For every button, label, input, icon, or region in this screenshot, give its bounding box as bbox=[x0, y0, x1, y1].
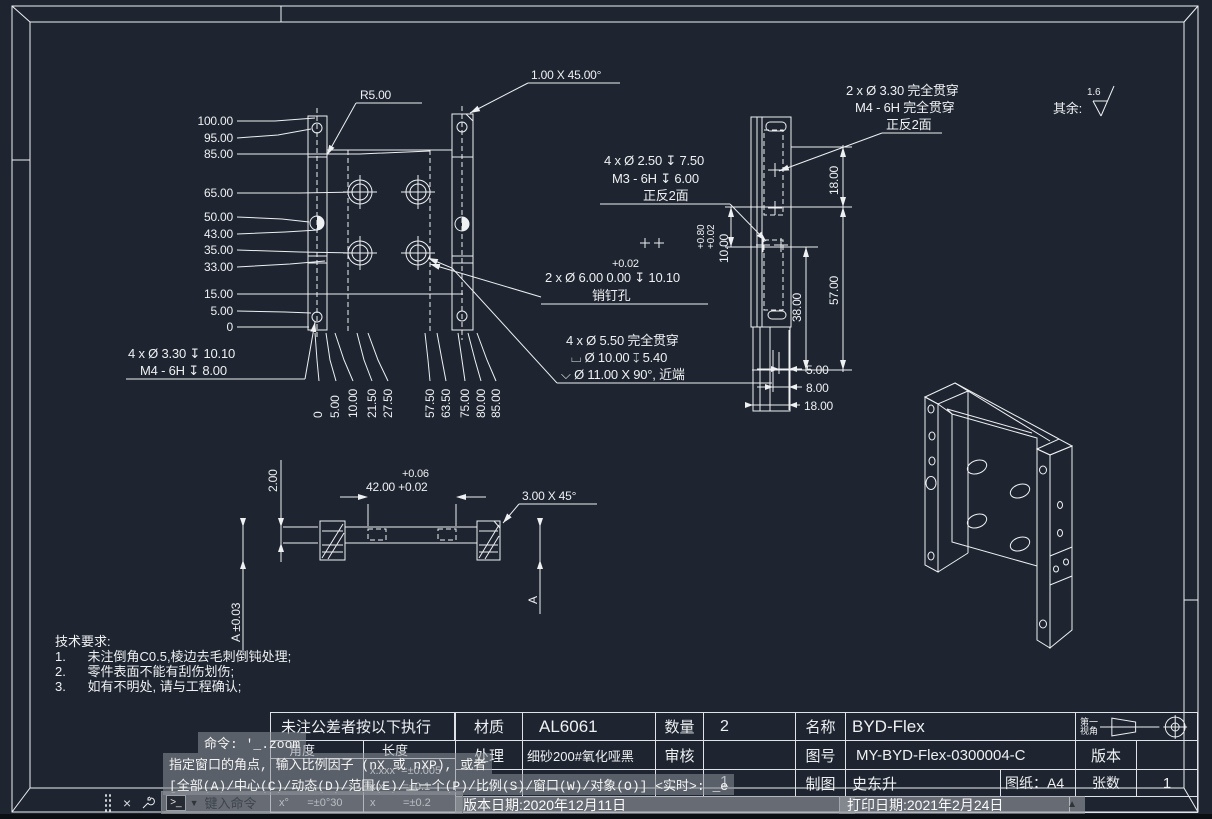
dim-label: 33.00 bbox=[204, 260, 234, 274]
dim-label: 0 bbox=[311, 411, 325, 418]
check-label: 审核 bbox=[655, 740, 704, 770]
technical-requirements: 技术要求: 1. 未注倒角C0.5,棱边去毛刺倒钝处理; 2. 零件表面不能有刮… bbox=[55, 634, 291, 694]
dim-label: +0.06 bbox=[402, 468, 429, 480]
dim-label: 2.00 bbox=[266, 469, 280, 492]
dim-label: 42.00 +0.02 bbox=[366, 480, 428, 494]
surface-finish-label: 其余: bbox=[1053, 101, 1082, 116]
empty-cell bbox=[1069, 796, 1198, 813]
callouts: R5.00 1.00 X 45.00° 2 x Ø 3.30 完全贯穿 M4 -… bbox=[126, 68, 1114, 383]
command-input[interactable]: >_ ▼ 键入命令 bbox=[161, 791, 463, 814]
sheets-label: 张数 bbox=[1075, 769, 1137, 797]
command-prompt-icon: >_ bbox=[166, 795, 185, 811]
version-date-bar: 版本日期:2020年12月11日 bbox=[455, 796, 855, 814]
dim-label: 95.00 bbox=[204, 131, 234, 145]
dim-label: 85.00 bbox=[489, 388, 503, 418]
chevron-down-icon[interactable]: ▼ bbox=[190, 798, 199, 808]
cbore-callout: ⌵ Ø 11.00 X 90°, 近端 bbox=[561, 367, 685, 382]
command-window: × >_ ▼ 键入命令 bbox=[104, 791, 463, 814]
sheet-label: 图纸：A4 bbox=[1000, 769, 1076, 797]
dim-label: 43.00 bbox=[204, 227, 234, 241]
status-strip bbox=[0, 814, 1212, 819]
tech-req-item: 3. 如有不明处, 请与工程确认; bbox=[55, 679, 291, 694]
m4-left-callout: M4 - 6H ↧ 8.00 bbox=[140, 363, 227, 378]
sheets-value: 1 bbox=[1136, 769, 1198, 797]
dim-label: 63.50 bbox=[439, 388, 453, 418]
dowel-callout-tol: +0.02 bbox=[612, 258, 639, 270]
dim-label: 18.00 bbox=[804, 399, 834, 413]
customize-wrench-icon[interactable] bbox=[141, 795, 156, 810]
name-label: 名称 bbox=[795, 712, 846, 741]
command-history-line: 命令: '_.zoom bbox=[198, 732, 306, 753]
side-view-dimensions: 18.00 57.00 38.00 +0.80 +0.02 10.00 5.00… bbox=[696, 145, 852, 413]
print-date-text: 打印日期:2021年2月24日 bbox=[847, 795, 1003, 815]
m4-top-callout: M4 - 6H 完全贯穿 bbox=[855, 100, 955, 115]
dim-label: 18.00 bbox=[827, 165, 841, 195]
dim-label: 21.50 bbox=[365, 388, 379, 418]
command-history-line: 指定窗口的角点, 输入比例因子 (nX 或 nXP), 或者 bbox=[163, 753, 492, 774]
material-label: 材质 bbox=[455, 712, 523, 741]
quantity-label: 数量 bbox=[655, 712, 704, 741]
drag-handle-icon[interactable] bbox=[104, 793, 112, 813]
dowel-callout: 2 x Ø 6.00 0.00 ↧ 10.10 bbox=[545, 270, 680, 285]
dim-label: 80.00 bbox=[474, 388, 488, 418]
section-view: +0.06 42.00 +0.02 2.00 3.00 X 45° A ±0.0… bbox=[229, 460, 597, 650]
dim-label: 65.00 bbox=[204, 186, 234, 200]
surface-finish-value: 1.6 bbox=[1087, 87, 1101, 98]
tech-req-item: 2. 零件表面不能有刮伤划伤; bbox=[55, 664, 291, 679]
chamfer-callout: 1.00 X 45.00° bbox=[531, 68, 602, 82]
part-name: BYD-Flex bbox=[845, 712, 1076, 741]
m3-callout: M3 - 6H ↧ 6.00 bbox=[612, 171, 699, 186]
dowel-callout-note: 销钉孔 bbox=[592, 288, 631, 303]
first-angle-projection-icon bbox=[1098, 713, 1197, 741]
tech-req-title: 技术要求: bbox=[55, 634, 291, 649]
datum-label: A bbox=[526, 596, 540, 604]
front-left-dimensions: 100.00 95.00 85.00 65.00 50.00 43.00 35.… bbox=[197, 114, 463, 334]
dim-label: 10.00 bbox=[717, 233, 731, 263]
drawing-canvas[interactable]: 100.00 95.00 85.00 65.00 50.00 43.00 35.… bbox=[0, 0, 1212, 819]
drawing-no-label: 图号 bbox=[795, 740, 846, 770]
dim-label: 5.00 bbox=[328, 395, 342, 418]
isometric-view bbox=[925, 383, 1072, 648]
cbore-callout: ⌴ Ø 10.00 ↧ 5.40 bbox=[571, 350, 667, 365]
front-bottom-dimensions: 0 5.00 10.00 21.50 27.50 57.50 63.50 75.… bbox=[311, 333, 503, 418]
radius-callout: R5.00 bbox=[360, 88, 392, 102]
dim-label: 38.00 bbox=[790, 292, 804, 322]
quantity-value: 2 bbox=[703, 712, 796, 741]
dim-label: 50.00 bbox=[204, 210, 234, 224]
check-value bbox=[703, 740, 796, 770]
cbore-holes bbox=[343, 175, 435, 270]
finish-value: 细砂200#氧化哑黑 bbox=[522, 740, 656, 770]
dim-label: 85.00 bbox=[204, 147, 234, 161]
m4-top-callout: 2 x Ø 3.30 完全贯穿 bbox=[846, 83, 959, 98]
tech-req-item: 1. 未注倒角C0.5,棱边去毛刺倒钝处理; bbox=[55, 649, 291, 664]
dim-label: 8.00 bbox=[806, 381, 829, 395]
cbore-callout: 4 x Ø 5.50 完全贯穿 bbox=[566, 333, 679, 348]
dim-label: 57.00 bbox=[827, 275, 841, 305]
version-value bbox=[1136, 740, 1198, 770]
close-icon[interactable]: × bbox=[123, 795, 131, 811]
command-input-placeholder: 键入命令 bbox=[205, 793, 257, 812]
scroll-up-icon[interactable]: ▲ bbox=[1067, 799, 1077, 810]
drafter-value: 史东升 bbox=[845, 769, 1001, 797]
m4-left-callout: 4 x Ø 3.30 ↧ 10.10 bbox=[128, 346, 235, 361]
version-date-text: 版本日期:2020年12月11日 bbox=[463, 795, 626, 815]
dim-label: 5.00 bbox=[806, 363, 829, 377]
dim-label: 75.00 bbox=[458, 388, 472, 418]
dim-label: 10.00 bbox=[346, 388, 360, 418]
m3-callout: 正反2面 bbox=[643, 188, 689, 203]
projection-label: 视角 bbox=[1080, 727, 1098, 736]
print-date-bar: 打印日期:2021年2月24日 ▲ bbox=[839, 796, 1085, 814]
version-label: 版本 bbox=[1075, 740, 1137, 770]
dim-label: 5.00 bbox=[210, 304, 233, 318]
dim-label: 100.00 bbox=[197, 114, 233, 128]
dim-label: 15.00 bbox=[204, 287, 234, 301]
drafter-label: 制图 bbox=[795, 769, 846, 797]
m4-top-callout: 正反2面 bbox=[886, 117, 932, 132]
m3-callout: 4 x Ø 2.50 ↧ 7.50 bbox=[604, 153, 704, 168]
dim-label: +0.02 bbox=[706, 224, 717, 249]
dim-label: 57.50 bbox=[423, 388, 437, 418]
dim-label: 0 bbox=[227, 320, 234, 334]
dim-label: 27.50 bbox=[381, 388, 395, 418]
autocad-window: 100.00 95.00 85.00 65.00 50.00 43.00 35.… bbox=[0, 0, 1212, 819]
drawing-no-value: MY-BYD-Flex-0300004-C bbox=[845, 740, 1076, 770]
material-value: AL6061 bbox=[522, 712, 656, 741]
dim-label: 35.00 bbox=[204, 243, 234, 257]
projection-cell: 第一 视角 bbox=[1075, 712, 1198, 741]
section-chamfer-callout: 3.00 X 45° bbox=[522, 489, 577, 503]
